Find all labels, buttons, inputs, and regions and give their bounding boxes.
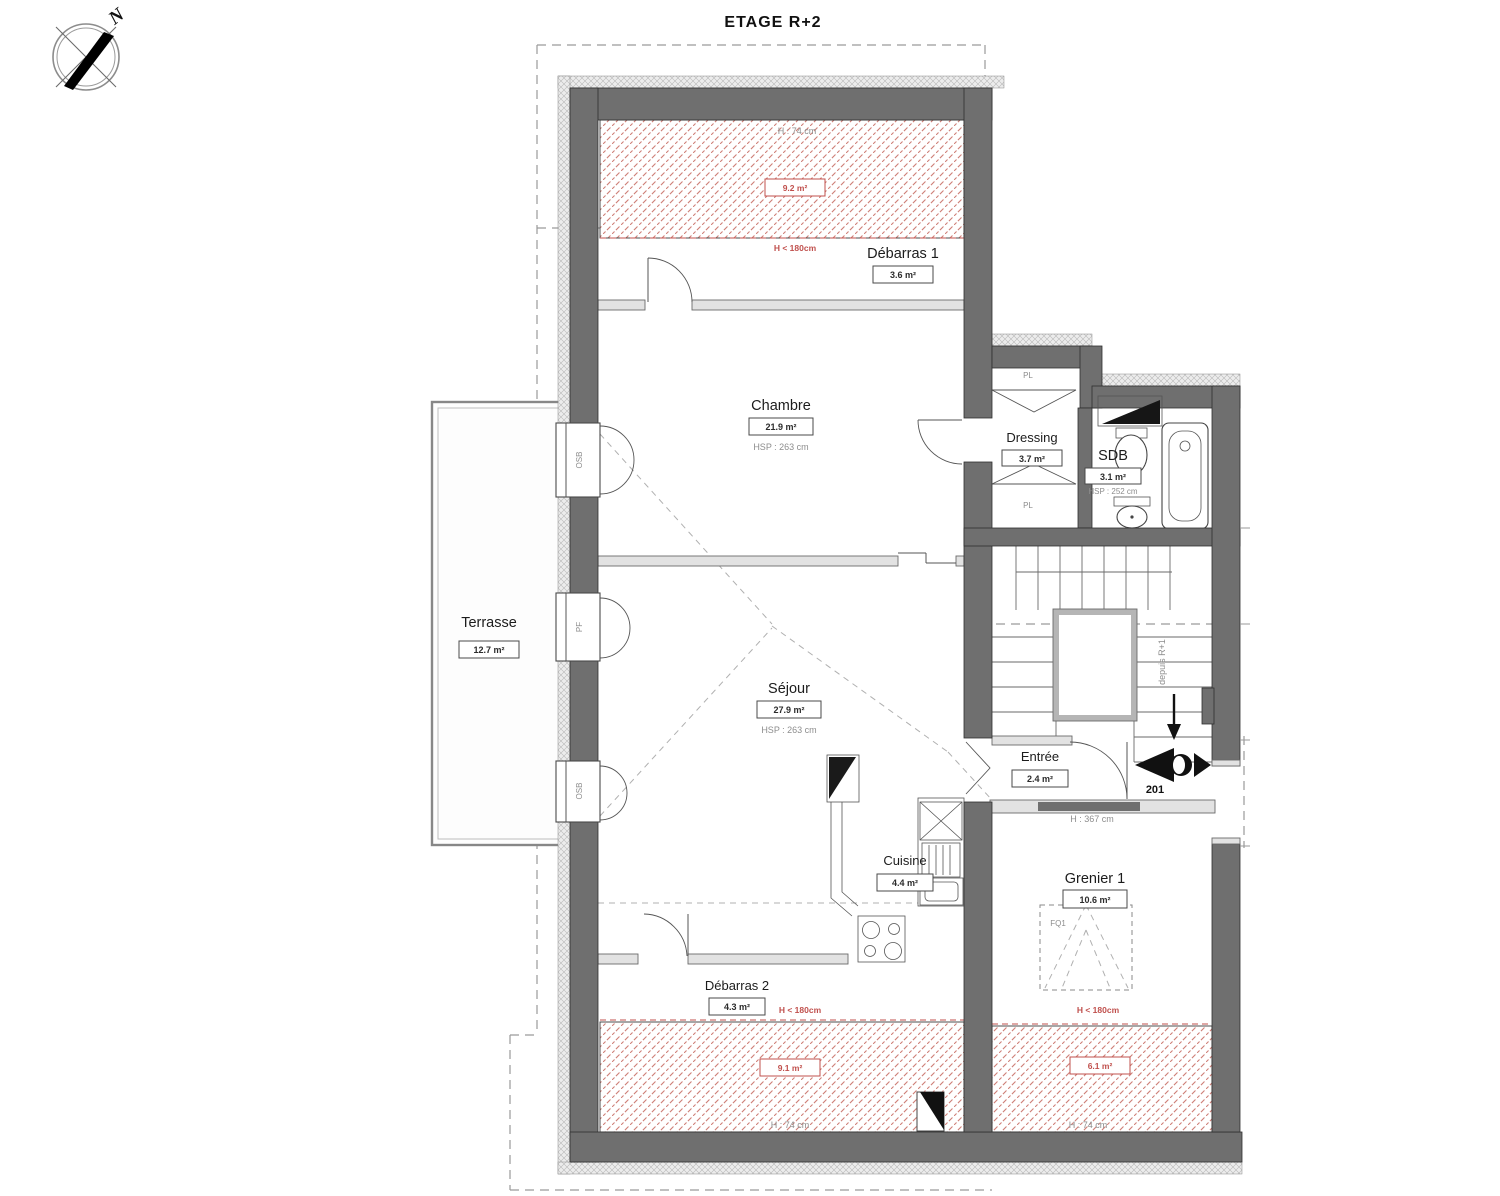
- room-chambre-area: 21.9 m²: [765, 422, 796, 432]
- top-zone-height: H : 74 cm: [778, 126, 817, 136]
- insulation-band-bottom: [558, 1162, 1242, 1174]
- room-debarras1-name: Débarras 1: [867, 246, 939, 262]
- bottom-left-zone-limit: H < 180cm: [779, 1005, 822, 1015]
- french-door-pf-label: PF: [575, 622, 584, 632]
- bottom-right-zone-height: H : 74 cm: [1069, 1120, 1108, 1130]
- stove: [858, 916, 905, 962]
- spine-wall-lower: [964, 802, 992, 1132]
- hatch-zone-bottom-right: [992, 1026, 1212, 1132]
- room-grenier1-name: Grenier 1: [1065, 871, 1125, 887]
- floor-plan-page: ETAGE R+2 N: [0, 0, 1500, 1196]
- room-debarras1-area: 3.6 m²: [890, 270, 916, 280]
- roof-slope-marker-bottom: [917, 1092, 944, 1131]
- closet-top-label: PL: [1023, 371, 1033, 380]
- exterior-wall-top: [570, 88, 992, 120]
- entry-door-201-marker: 201: [1135, 748, 1211, 796]
- spine-wall-upper: [964, 88, 992, 418]
- door-entree: [1070, 742, 1127, 799]
- room-sdb-area: 3.1 m²: [1100, 472, 1126, 482]
- bottom-right-zone-area: 6.1 m²: [1088, 1061, 1113, 1071]
- room-chambre-name: Chambre: [751, 398, 811, 414]
- window-osb-bottom: OSB: [556, 761, 627, 822]
- room-terrasse-name: Terrasse: [461, 615, 517, 631]
- roof-projection-lines: [598, 434, 992, 903]
- room-terrasse-area: 12.7 m²: [473, 645, 504, 655]
- room-debarras2-name: Débarras 2: [705, 978, 769, 993]
- entry-door-frame-top: [1212, 760, 1240, 766]
- spine-wall-middle: [964, 462, 992, 738]
- exterior-wall-right-lower: [1212, 844, 1240, 1132]
- dressing-top-wall: [992, 346, 1092, 368]
- opening-sejour-entree: [966, 742, 990, 794]
- room-sdb-ceiling: HSP : 252 cm: [1088, 487, 1138, 496]
- exterior-wall-right-upper: [1212, 386, 1240, 766]
- door-debarras1: [648, 258, 692, 302]
- window-osb-top-label: OSB: [575, 452, 584, 469]
- beam-height-label: H : 367 cm: [1070, 814, 1114, 824]
- roof-window-label: FQ1: [1050, 919, 1066, 928]
- french-door-pf: PF: [556, 593, 630, 661]
- entry-door-frame-bottom: [1212, 838, 1240, 844]
- window-osb-top: OSB: [556, 423, 634, 497]
- north-label: N: [104, 3, 130, 29]
- door-dressing: [918, 420, 962, 464]
- door-debarras2: [644, 914, 688, 956]
- stair-void: [1056, 612, 1134, 718]
- top-zone-area: 9.2 m²: [783, 183, 808, 193]
- sliding-door-symbol: [898, 553, 956, 563]
- exterior-wall-bottom: [570, 1132, 1242, 1162]
- stair-wall-stub: [1202, 688, 1214, 724]
- room-grenier1-area: 10.6 m²: [1079, 895, 1110, 905]
- page-title: ETAGE R+2: [724, 14, 821, 31]
- entree-bottom-beam: [1038, 802, 1140, 811]
- door-number-label: 201: [1146, 784, 1164, 796]
- bottom-left-zone-height: H : 74 cm: [771, 1120, 810, 1130]
- north-arrow: [64, 32, 114, 90]
- room-sejour-area: 27.9 m²: [773, 705, 804, 715]
- roof-window-fq1: FQ1: [1040, 905, 1132, 990]
- stair-entree-wall: [992, 736, 1072, 745]
- window-osb-bottom-label: OSB: [575, 783, 584, 800]
- room-entree-name: Entrée: [1021, 749, 1059, 764]
- floor-plan-drawing: ETAGE R+2 N: [0, 0, 1500, 1196]
- room-cuisine-area: 4.4 m²: [892, 878, 918, 888]
- bottom-left-zone-area: 9.1 m²: [778, 1063, 803, 1073]
- north-compass: N: [53, 3, 129, 90]
- top-zone-limit: H < 180cm: [774, 243, 817, 253]
- sdb-stair-wall: [964, 528, 1240, 546]
- room-cuisine-name: Cuisine: [883, 853, 926, 868]
- room-chambre-ceiling: HSP : 263 cm: [753, 442, 808, 452]
- bathtub: [1162, 423, 1208, 529]
- room-dressing-area: 3.7 m²: [1019, 454, 1045, 464]
- flue-duct-symbol: [827, 755, 859, 916]
- left-facade-openings: OSB PF OSB: [556, 423, 634, 822]
- bottom-right-zone-limit: H < 180cm: [1077, 1005, 1120, 1015]
- closet-bottom-label: PL: [1023, 501, 1033, 510]
- room-dressing-name: Dressing: [1006, 430, 1057, 445]
- toilet: [1114, 497, 1150, 528]
- room-sdb-name: SDB: [1098, 448, 1128, 464]
- stair-down-arrow: [1167, 694, 1181, 740]
- room-sejour-name: Séjour: [768, 681, 810, 697]
- staircase: depuis R+1: [992, 546, 1212, 762]
- insulation-band-top: [558, 76, 1004, 88]
- walls: [558, 76, 1250, 1174]
- room-debarras2-area: 4.3 m²: [724, 1002, 750, 1012]
- room-entree-area: 2.4 m²: [1027, 774, 1053, 784]
- hatch-zone-bottom-left: [600, 1022, 964, 1132]
- room-sejour-ceiling: HSP : 263 cm: [761, 725, 816, 735]
- stair-from-label: depuis R+1: [1157, 639, 1167, 685]
